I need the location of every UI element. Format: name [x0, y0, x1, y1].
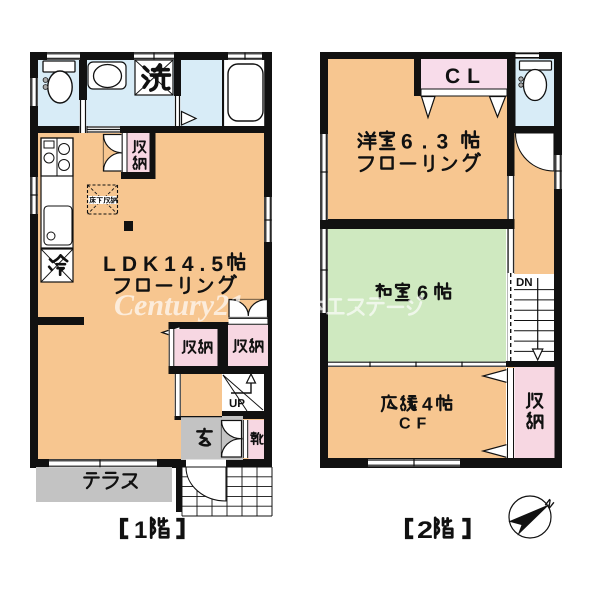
svg-text:1: 1: [134, 517, 147, 544]
svg-text:6.3: 6.3: [401, 131, 457, 154]
svg-text:2: 2: [417, 517, 433, 544]
svg-text:4: 4: [422, 395, 433, 416]
svg-text:LDK14.5: LDK14.5: [103, 253, 229, 276]
svg-text:Century21: Century21: [114, 289, 244, 322]
svg-text:UP: UP: [229, 398, 245, 410]
svg-text:CF: CF: [399, 416, 432, 433]
svg-text:CL: CL: [445, 65, 487, 88]
svg-text:6: 6: [417, 283, 428, 305]
svg-text:DN: DN: [516, 277, 533, 289]
